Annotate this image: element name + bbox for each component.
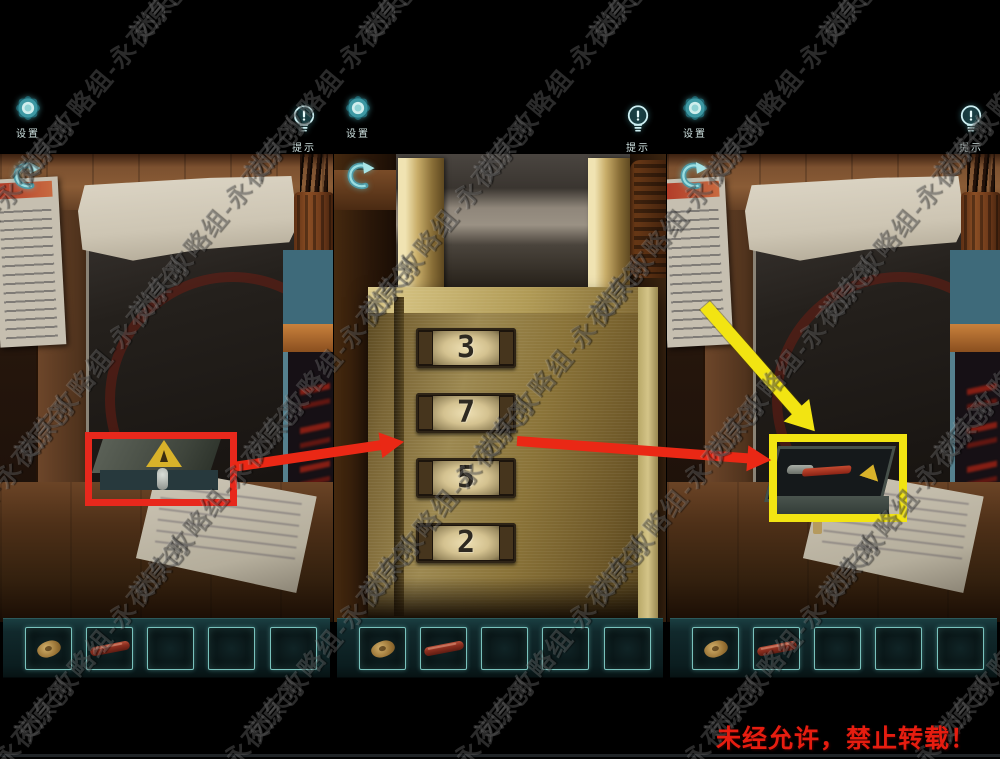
dial-face: 3 [433, 331, 499, 365]
dial-window-1[interactable]: 3 [416, 328, 516, 368]
inventory-bar [3, 618, 330, 678]
yellow-highlight-rect [769, 434, 907, 522]
settings-label: 设置 [346, 125, 370, 140]
inventory-slot-empty[interactable] [814, 627, 861, 670]
hint-button[interactable]: 提示 [624, 102, 652, 154]
settings-button[interactable]: 设置 [342, 92, 374, 140]
panel-scene-box-closed: 设置 提示 [0, 0, 333, 759]
inventory-bar [337, 618, 663, 678]
dial-digit: 3 [457, 333, 475, 363]
gear-icon [679, 92, 711, 124]
dial-digit: 7 [457, 398, 475, 428]
inventory-slot-empty[interactable] [542, 627, 589, 670]
undo-arrow-icon [8, 158, 44, 194]
undo-arrow-icon [342, 158, 378, 194]
inventory-slot-empty[interactable] [270, 627, 317, 670]
lightbulb-icon [624, 102, 652, 138]
gear-icon [342, 92, 374, 124]
desk-scene [667, 154, 1000, 622]
undo-arrow-icon [675, 158, 711, 194]
hint-label: 提示 [959, 139, 983, 154]
settings-label: 设置 [683, 125, 707, 140]
tan-leaf-item[interactable] [35, 638, 62, 659]
hint-button[interactable]: 提示 [290, 102, 318, 154]
inventory-slot[interactable] [692, 627, 739, 670]
pens [300, 154, 328, 194]
pens [967, 154, 995, 194]
hint-button[interactable]: 提示 [957, 102, 985, 154]
orange-stripe [283, 324, 333, 352]
inventory-slot[interactable] [420, 627, 467, 670]
inventory-slot-empty[interactable] [604, 627, 651, 670]
inventory-slot-empty[interactable] [875, 627, 922, 670]
walkthrough-collage: 设置 提示 [0, 0, 1000, 759]
desk-scene [0, 154, 333, 622]
lock-scene: 3 7 5 2 [334, 154, 666, 622]
inventory-slot-empty[interactable] [481, 627, 528, 670]
inventory-slot-empty[interactable] [208, 627, 255, 670]
dial-digit: 2 [457, 528, 475, 558]
back-button[interactable] [675, 158, 711, 194]
gear-icon [12, 92, 44, 124]
dial-digit: 5 [457, 463, 475, 493]
pen-cup [961, 192, 1000, 258]
panel-scene-box-open: 设置 提示 [667, 0, 1000, 759]
lightbulb-icon [290, 102, 318, 138]
dial-window-3[interactable]: 5 [416, 458, 516, 498]
dial-face: 2 [433, 526, 499, 560]
dial-face: 5 [433, 461, 499, 495]
arrow-head [379, 429, 407, 458]
dial-face: 7 [433, 396, 499, 430]
dial-window-2[interactable]: 7 [416, 393, 516, 433]
tan-leaf-item[interactable] [702, 638, 729, 659]
inventory-slot[interactable] [359, 627, 406, 670]
inventory-slot[interactable] [753, 627, 800, 670]
pen-cup [294, 192, 333, 258]
shadow-fade [368, 577, 658, 619]
hint-label: 提示 [626, 139, 650, 154]
lightbulb-icon [957, 102, 985, 138]
inventory-slot-empty[interactable] [147, 627, 194, 670]
inventory-slot[interactable] [25, 627, 72, 670]
inventory-slot[interactable] [86, 627, 133, 670]
red-stick-item[interactable] [756, 640, 797, 656]
tan-leaf-item[interactable] [369, 638, 396, 659]
back-button[interactable] [342, 158, 378, 194]
red-highlight-rect [85, 432, 237, 506]
inventory-bar [670, 618, 997, 678]
dial-window-4[interactable]: 2 [416, 523, 516, 563]
panel-lock-closeup: 3 7 5 2 [334, 0, 666, 759]
arrow-head [746, 445, 772, 473]
settings-label: 设置 [16, 125, 40, 140]
copyright-notice: 未经允许，禁止转载！ [716, 719, 976, 755]
settings-button[interactable]: 设置 [679, 92, 711, 140]
orange-stripe [950, 324, 1000, 352]
back-button[interactable] [8, 158, 44, 194]
settings-button[interactable]: 设置 [12, 92, 44, 140]
pen-cup-blurred [630, 160, 666, 278]
wall-poster [0, 176, 66, 347]
inventory-slot-empty[interactable] [937, 627, 984, 670]
hint-label: 提示 [292, 139, 316, 154]
red-stick-item[interactable] [89, 640, 130, 656]
red-stick-item[interactable] [423, 640, 464, 656]
